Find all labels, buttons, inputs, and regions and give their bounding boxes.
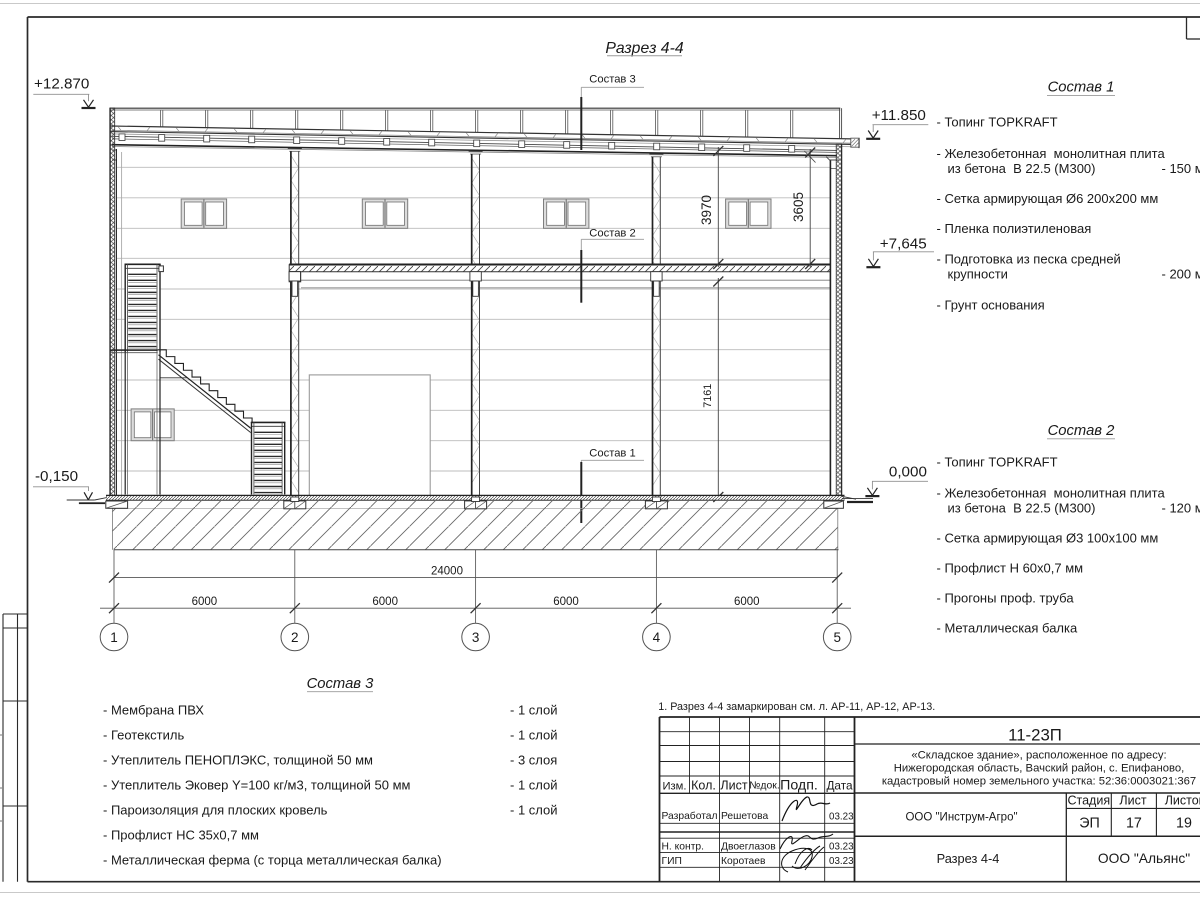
svg-text:6000: 6000	[553, 596, 579, 608]
svg-text:из бетона В 22.5 (М300): из бетона В 22.5 (М300)	[948, 501, 1096, 516]
svg-text:3970: 3970	[699, 195, 714, 225]
svg-text:ЭП: ЭП	[1079, 815, 1100, 831]
svg-text:- Профлист НС 35х0,7 мм: - Профлист НС 35х0,7 мм	[103, 828, 259, 843]
svg-text:- Пленка полиэтиленовая: - Пленка полиэтиленовая	[937, 221, 1092, 236]
svg-text:Состав 3: Состав 3	[307, 676, 375, 692]
svg-text:- 1 слой: - 1 слой	[510, 803, 558, 818]
svg-text:Дата: Дата	[826, 779, 853, 793]
svg-text:24000: 24000	[431, 565, 463, 577]
svg-text:крупности: крупности	[948, 267, 1008, 282]
svg-text:Решетова: Решетова	[721, 811, 768, 822]
svg-text:- 3 слоя: - 3 слоя	[510, 753, 557, 768]
svg-text:+12.870: +12.870	[34, 76, 89, 93]
svg-text:- 1 слой: - 1 слой	[510, 778, 558, 793]
svg-text:Нижегородская область, Вачский: Нижегородская область, Вачский район, с.…	[894, 763, 1185, 775]
svg-text:- Грунт основания: - Грунт основания	[937, 298, 1045, 313]
svg-text:- 1 слой: - 1 слой	[510, 728, 558, 743]
svg-text:Состав 2: Состав 2	[1048, 423, 1116, 439]
svg-text:- Железобетонная монолитная п: - Железобетонная монолитная плита	[937, 146, 1166, 161]
svg-text:Состав 1: Состав 1	[1048, 80, 1115, 96]
svg-text:7161: 7161	[702, 384, 714, 408]
svg-text:«Складское здание», расположен: «Складское здание», расположенное по адр…	[911, 750, 1166, 762]
svg-text:6000: 6000	[372, 596, 398, 608]
svg-text:- Металлическая балка: - Металлическая балка	[937, 621, 1078, 636]
svg-text:- Железобетонная монолитная п: - Железобетонная монолитная плита	[937, 486, 1166, 501]
svg-text:Состав 1: Состав 1	[589, 448, 635, 460]
svg-text:3: 3	[472, 630, 480, 645]
svg-text:- Топинг TOPKRAFT: - Топинг TOPKRAFT	[937, 115, 1058, 130]
svg-text:Подп.: Подп.	[780, 778, 818, 794]
svg-text:1. Разрез 4-4 замаркирован см.: 1. Разрез 4-4 замаркирован см. л. АР-11,…	[658, 701, 935, 713]
svg-text:Кол.: Кол.	[691, 779, 716, 793]
svg-text:4: 4	[653, 630, 661, 645]
svg-text:- 200 мм: - 200 мм	[1162, 267, 1200, 282]
svg-text:- Подготовка из песка средней: - Подготовка из песка средней	[937, 252, 1121, 267]
svg-text:Стадия: Стадия	[1067, 794, 1110, 808]
svg-text:- Сетка армирующая Ø3 100х100: - Сетка армирующая Ø3 100х100 мм	[937, 531, 1159, 546]
svg-text:ГИП: ГИП	[662, 856, 682, 867]
svg-text:- Пароизоляция для плоских кро: - Пароизоляция для плоских кровель	[103, 803, 328, 818]
svg-text:Состав 3: Состав 3	[589, 74, 635, 86]
svg-text:- 1 слой: - 1 слой	[510, 703, 558, 718]
svg-text:- Топинг TOPKRAFT: - Топинг TOPKRAFT	[937, 455, 1058, 470]
svg-text:03.23: 03.23	[829, 812, 854, 823]
svg-text:17: 17	[1126, 815, 1142, 831]
svg-text:5: 5	[833, 630, 841, 645]
svg-text:№док.: №док.	[749, 781, 779, 792]
svg-text:Изм.: Изм.	[663, 781, 687, 793]
svg-text:- Утеплитель ПЕНОПЛЭКС, толщин: - Утеплитель ПЕНОПЛЭКС, толщиной 50 мм	[103, 753, 373, 768]
svg-text:11-23П: 11-23П	[1008, 726, 1062, 745]
svg-text:Разрез 4-4: Разрез 4-4	[605, 40, 683, 57]
svg-text:из бетона В 22.5 (М300): из бетона В 22.5 (М300)	[948, 161, 1096, 176]
svg-text:Состав 2: Состав 2	[589, 227, 635, 239]
svg-text:Коротаев: Коротаев	[721, 856, 766, 867]
svg-text:Разрез 4-4: Разрез 4-4	[937, 851, 1000, 866]
svg-text:6000: 6000	[734, 596, 760, 608]
svg-text:-0,150: -0,150	[35, 468, 78, 485]
svg-text:Двоеглазов: Двоеглазов	[721, 842, 776, 853]
svg-text:- 150 мм: - 150 мм	[1162, 161, 1200, 176]
svg-text:+11.850: +11.850	[872, 107, 926, 124]
svg-text:1: 1	[110, 630, 118, 645]
svg-text:кадастровый номер земельного у: кадастровый номер земельного участка: 52…	[882, 776, 1196, 788]
svg-text:ООО "Альянс": ООО "Альянс"	[1098, 851, 1190, 866]
svg-text:Лист: Лист	[720, 779, 747, 793]
svg-text:- Металлическая ферма (с торца: - Металлическая ферма (с торца металличе…	[103, 853, 442, 868]
svg-text:- Утеплитель Эковер Y=100 кг/м: - Утеплитель Эковер Y=100 кг/м3, толщино…	[103, 778, 411, 793]
svg-text:Лист: Лист	[1119, 794, 1146, 808]
svg-text:03.23: 03.23	[829, 842, 854, 853]
svg-text:3605: 3605	[791, 192, 806, 222]
svg-text:6000: 6000	[192, 596, 218, 608]
svg-text:2: 2	[291, 630, 299, 645]
svg-text:- Прогоны проф. труба: - Прогоны проф. труба	[937, 591, 1075, 606]
svg-text:Разработал: Разработал	[662, 810, 718, 822]
svg-text:03.23: 03.23	[829, 856, 854, 867]
svg-text:- Профлист Н 60х0,7 мм: - Профлист Н 60х0,7 мм	[937, 561, 1084, 576]
svg-text:ООО "Инструм-Агро": ООО "Инструм-Агро"	[905, 812, 1017, 824]
svg-text:+7,645: +7,645	[880, 235, 927, 252]
svg-text:19: 19	[1176, 815, 1192, 831]
svg-text:Листов: Листов	[1165, 794, 1200, 808]
svg-text:- Сетка армирующая Ø6 200х200: - Сетка армирующая Ø6 200х200 мм	[937, 191, 1159, 206]
svg-text:- 120 мм: - 120 мм	[1162, 501, 1200, 516]
svg-text:- Геотекстиль: - Геотекстиль	[103, 728, 184, 743]
svg-text:Н. контр.: Н. контр.	[662, 842, 705, 853]
svg-text:- Мембрана ПВХ: - Мембрана ПВХ	[103, 703, 204, 718]
svg-text:0,000: 0,000	[889, 463, 927, 480]
